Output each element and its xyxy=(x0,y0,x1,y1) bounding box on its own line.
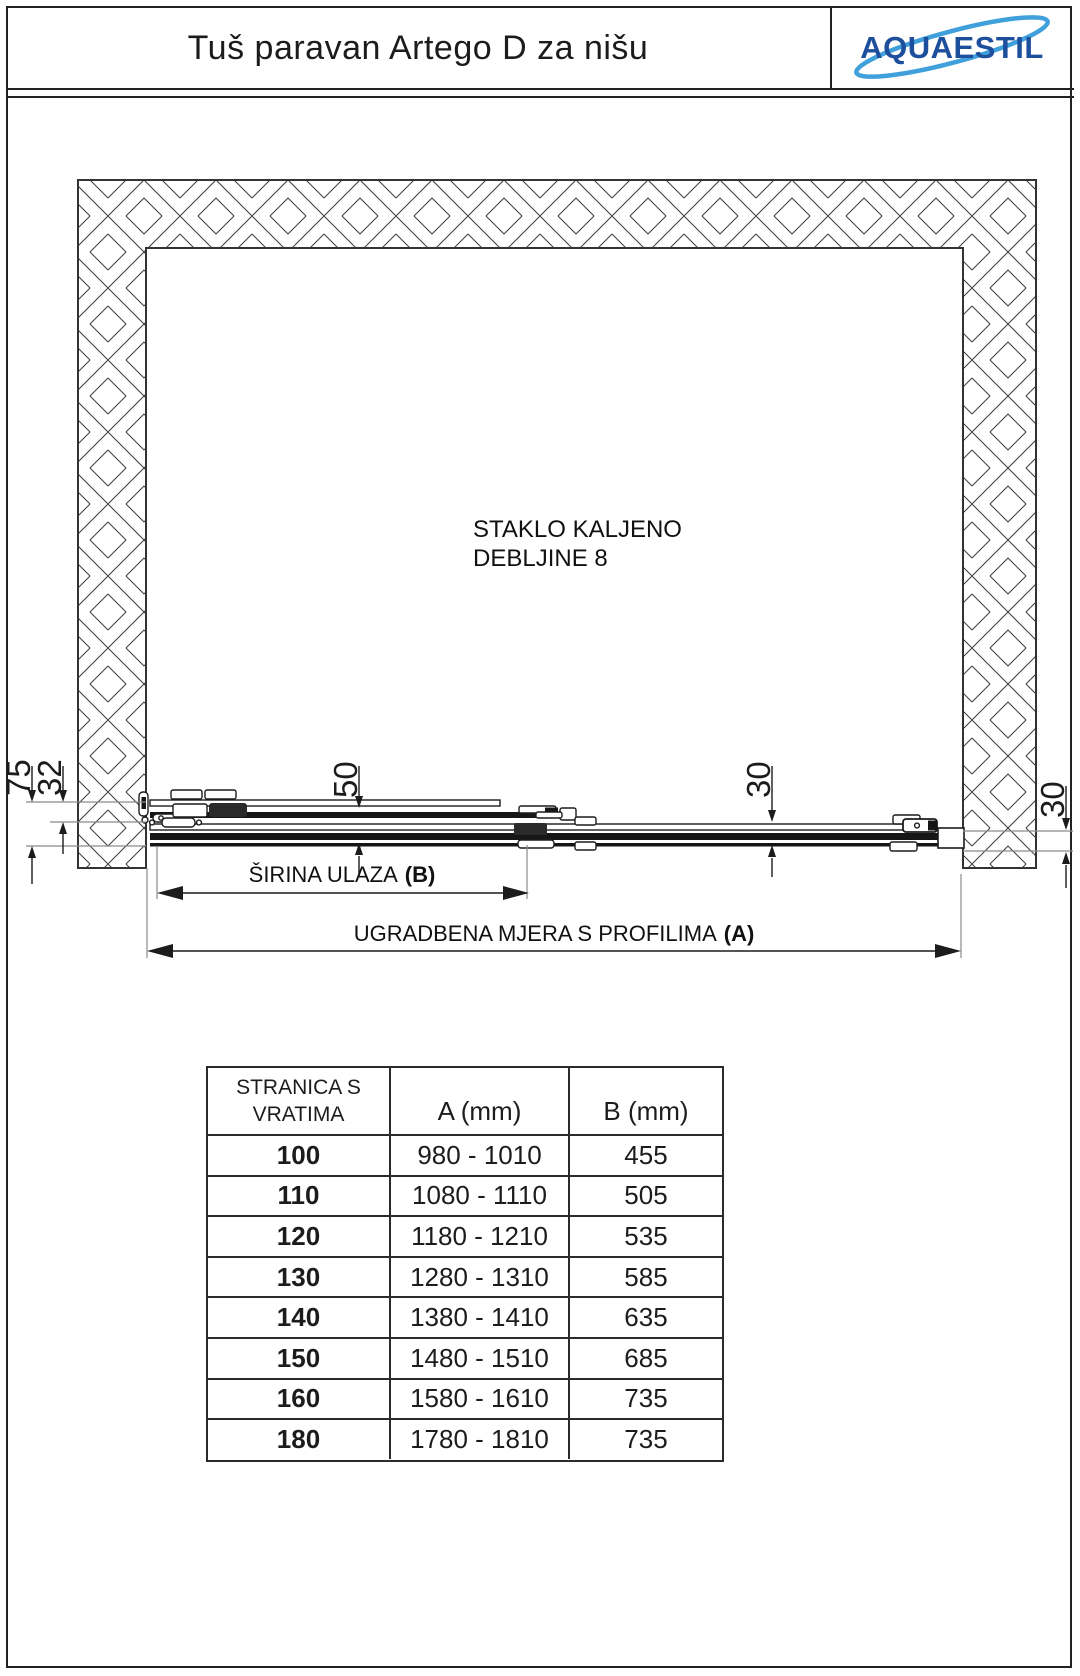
cell-b: 585 xyxy=(568,1256,722,1297)
page-title: Tuš paravan Artego D za nišu xyxy=(8,8,828,88)
dimension-50: 50 xyxy=(327,761,364,877)
table-header-col1-line1: STRANICA S xyxy=(236,1074,361,1101)
cell-a: 1280 - 1310 xyxy=(389,1256,568,1297)
table-header-b: B (mm) xyxy=(568,1068,722,1134)
brand-logo: AQUAESTIL xyxy=(832,8,1072,88)
cell-size: 110 xyxy=(208,1175,389,1216)
dimension-30-right: 30 xyxy=(1034,781,1071,888)
roller-carriage-left xyxy=(150,790,247,827)
cell-b: 685 xyxy=(568,1337,722,1378)
size-table: STRANICA S VRATIMA A (mm) B (mm) 100 980… xyxy=(206,1066,724,1462)
install-measure-text: UGRADBENA MJERA S PROFILIMA xyxy=(354,921,717,946)
screen-profile-section xyxy=(139,790,964,851)
dimension-entry-width-B: ŠIRINA ULAZA(B) xyxy=(157,862,529,900)
cell-size: 120 xyxy=(208,1215,389,1256)
cell-b: 535 xyxy=(568,1215,722,1256)
cell-size: 140 xyxy=(208,1296,389,1337)
glass-note: STAKLO KALJENO DEBLJINE 8 xyxy=(473,516,682,572)
install-measure-ref: (A) xyxy=(724,921,755,946)
table-header-col1: STRANICA S VRATIMA xyxy=(208,1068,389,1134)
cell-a: 1780 - 1810 xyxy=(389,1418,568,1459)
cell-a: 1580 - 1610 xyxy=(389,1378,568,1419)
install-measure-label: UGRADBENA MJERA S PROFILIMA(A) xyxy=(354,921,755,946)
entry-width-ref: (B) xyxy=(405,862,436,887)
cell-b: 635 xyxy=(568,1296,722,1337)
cell-b: 505 xyxy=(568,1175,722,1216)
spec-sheet-page: { "header": { "title": "Tuš paravan Arte… xyxy=(0,0,1080,1676)
aquaestil-logo: AQUAESTIL xyxy=(845,15,1059,81)
table-header-a: A (mm) xyxy=(389,1068,568,1134)
cell-size: 150 xyxy=(208,1337,389,1378)
dimension-32: 32 xyxy=(31,759,68,854)
glass-note-line1: STAKLO KALJENO xyxy=(473,516,682,543)
entry-width-label: ŠIRINA ULAZA(B) xyxy=(249,862,436,887)
technical-drawing: STAKLO KALJENO DEBLJINE 8 xyxy=(0,96,1080,996)
cell-a: 1480 - 1510 xyxy=(389,1337,568,1378)
cell-a: 1380 - 1410 xyxy=(389,1296,568,1337)
right-wall-profile xyxy=(938,828,964,848)
dimension-install-A: UGRADBENA MJERA S PROFILIMA(A) xyxy=(147,921,961,958)
cell-a: 980 - 1010 xyxy=(389,1134,568,1175)
cell-size: 100 xyxy=(208,1134,389,1175)
cell-b: 735 xyxy=(568,1378,722,1419)
cell-size: 160 xyxy=(208,1378,389,1419)
header-divider-line xyxy=(6,88,1074,90)
cell-size: 180 xyxy=(208,1418,389,1459)
logo-text: AQUAESTIL xyxy=(860,30,1044,65)
dimension-30-middle: 30 xyxy=(740,761,777,877)
cell-b: 455 xyxy=(568,1134,722,1175)
cell-a: 1180 - 1210 xyxy=(389,1215,568,1256)
cell-size: 130 xyxy=(208,1256,389,1297)
cell-a: 1080 - 1110 xyxy=(389,1175,568,1216)
glass-note-line2: DEBLJINE 8 xyxy=(473,545,608,572)
entry-width-text: ŠIRINA ULAZA xyxy=(249,862,398,887)
page-title-text: Tuš paravan Artego D za nišu xyxy=(188,29,649,68)
table-header-col1-line2: VRATIMA xyxy=(253,1101,345,1128)
cell-b: 735 xyxy=(568,1418,722,1459)
